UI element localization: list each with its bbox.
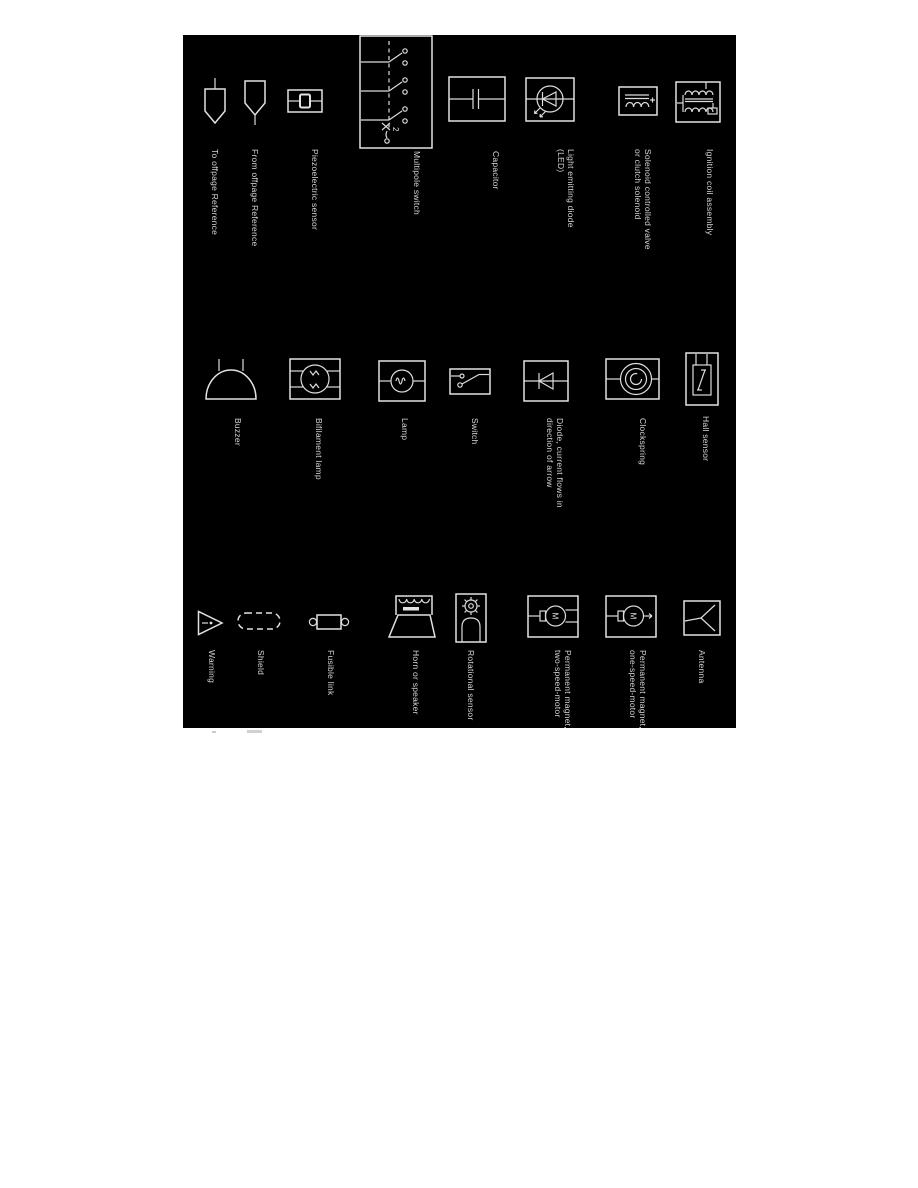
warning-symbol (196, 610, 224, 636)
pole-count-label: 2 (391, 127, 400, 132)
scanned-page: 2 (0, 0, 918, 1188)
capacitor-label: Capacitor (491, 151, 501, 276)
light-emitting-diode-symbol (525, 77, 575, 122)
antenna-symbol (683, 600, 721, 636)
diode-label: Diode, current flows in direction of arr… (545, 418, 565, 543)
pm-one-speed-motor-symbol: M (605, 595, 657, 638)
multipole-switch-icon: 2 (359, 35, 433, 149)
ignition-coil-icon (675, 81, 721, 123)
multipole-switch-symbol: 2 (359, 35, 433, 149)
buzzer-symbol (205, 358, 257, 400)
clockspring-icon (605, 358, 660, 400)
diode-icon (523, 360, 569, 402)
solenoid-valve-symbol (618, 86, 658, 116)
rotational-sensor-label: Rotational sensor (466, 650, 476, 775)
hall-sensor-label: Hall sensor (701, 416, 711, 541)
piezoelectric-sensor-icon (287, 89, 323, 113)
antenna-icon (683, 600, 721, 636)
capacitor-symbol (448, 76, 506, 122)
switch-label: Switch (470, 418, 480, 543)
scan-artifact (212, 731, 216, 733)
bifilament-lamp-symbol (289, 358, 341, 400)
fusible-link-label: Fusible link (326, 650, 336, 775)
from-offpage-reference-symbol (243, 80, 267, 126)
pm-two-speed-motor-symbol: M (527, 595, 579, 638)
warning-icon (196, 610, 224, 636)
from-offpage-reference-icon (243, 80, 267, 126)
scan-artifact (247, 730, 262, 733)
clockspring-label: Clockspring (638, 418, 648, 543)
capacitor-icon (448, 76, 506, 122)
ignition-coil-label: Ignition coil assembly (705, 149, 715, 274)
to-offpage-reference-label: To offpage Reference (210, 149, 220, 274)
diode-symbol (523, 360, 569, 402)
solenoid-valve-label: Solenoid controlled valve or clutch sole… (633, 149, 653, 274)
legend-panel: 2 (183, 35, 736, 728)
buzzer-label: Buzzer (233, 418, 243, 543)
rotational-sensor-symbol (455, 593, 487, 643)
motor-letter: M (629, 613, 638, 620)
horn-or-speaker-symbol (388, 595, 436, 639)
shield-icon (237, 612, 281, 630)
fusible-link-symbol (308, 612, 350, 632)
switch-icon (449, 368, 491, 395)
from-offpage-reference-label: From offpage Reference (250, 149, 260, 274)
pm-one-speed-motor-label: Permanent magnet, one-speed-motor (628, 650, 648, 775)
light-emitting-diode-label: Light emitting diode (LED) (556, 149, 576, 274)
rotational-sensor-icon (455, 593, 487, 643)
horn-or-speaker-label: Horn or speaker (411, 650, 421, 775)
shield-label: Shield (256, 650, 266, 775)
to-offpage-reference-icon (203, 78, 227, 124)
piezoelectric-sensor-symbol (287, 89, 323, 113)
fusible-link-icon (308, 612, 350, 632)
clockspring-symbol (605, 358, 660, 400)
multipole-switch-label: Multipole switch (412, 151, 422, 276)
lamp-icon (378, 360, 426, 402)
antenna-label: Antenna (697, 650, 707, 775)
shield-symbol (237, 612, 281, 630)
switch-symbol (449, 368, 491, 395)
lamp-symbol (378, 360, 426, 402)
motor-letter: M (551, 613, 560, 620)
lamp-label: Lamp (400, 418, 410, 543)
light-emitting-diode-icon (525, 77, 575, 122)
hall-sensor-symbol (685, 352, 719, 406)
pm-two-speed-motor-label: Permanent magnet, two-speed-motor (553, 650, 573, 775)
solenoid-valve-icon (618, 86, 658, 116)
piezoelectric-sensor-label: Piezoelectric sensor (310, 149, 320, 274)
buzzer-icon (205, 358, 257, 400)
ignition-coil-symbol (675, 81, 721, 123)
to-offpage-reference-symbol (203, 78, 227, 124)
bifilament-lamp-label: Bifilament lamp (314, 418, 324, 543)
warning-label: Warning (207, 650, 217, 775)
pm-two-speed-motor-icon: M (527, 595, 579, 638)
hall-sensor-icon (685, 352, 719, 406)
horn-or-speaker-icon (388, 595, 436, 639)
bifilament-lamp-icon (289, 358, 341, 400)
pm-one-speed-motor-icon: M (605, 595, 657, 638)
